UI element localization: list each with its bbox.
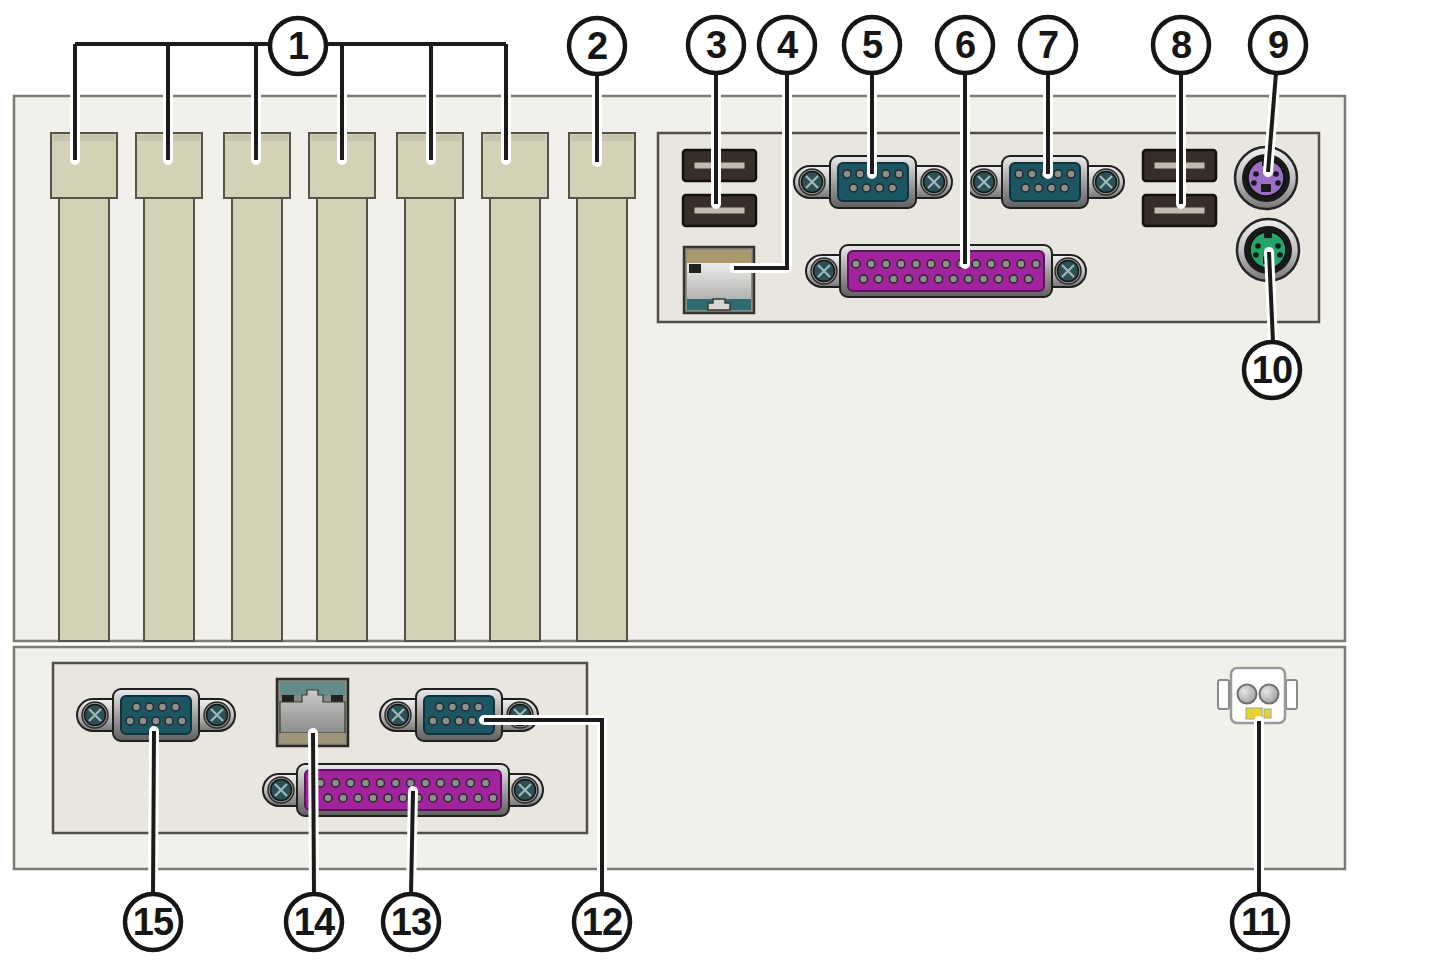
- callout-number: 9: [1268, 24, 1288, 66]
- connector-pin: [442, 717, 450, 725]
- ps2-pin-hole: [1251, 180, 1257, 186]
- connector-pin: [489, 794, 497, 802]
- leader-line-14: [313, 733, 314, 894]
- connector-pin: [339, 794, 347, 802]
- parallel-icon: [848, 251, 1044, 291]
- callout-2: 2: [569, 18, 625, 74]
- callout-1: 1: [270, 18, 326, 74]
- connector-pin: [890, 275, 898, 283]
- connector-pin: [429, 717, 437, 725]
- ps2-pin-hole: [1277, 252, 1283, 258]
- expansion-slot-body: [577, 198, 627, 641]
- usb-contact-tab: [694, 207, 745, 214]
- connector-pin: [856, 170, 864, 178]
- power-tab-right: [1286, 680, 1297, 709]
- ethernet-port-top: [684, 247, 754, 313]
- rj45-contact-block: [689, 264, 701, 273]
- connector-pin: [1015, 170, 1023, 178]
- connector-pin: [987, 260, 995, 268]
- power-key: [1264, 709, 1271, 718]
- ps2-pin-hole: [1275, 180, 1281, 186]
- connector-pin: [1022, 184, 1030, 192]
- expansion-slot-body: [232, 198, 282, 641]
- connector-pin: [965, 275, 973, 283]
- connector-pin: [449, 703, 457, 711]
- connector-pin: [895, 170, 903, 178]
- connector-pin: [1032, 260, 1040, 268]
- callout-5: 5: [844, 17, 900, 73]
- connector-pin: [436, 703, 444, 711]
- expansion-slot-body: [405, 198, 455, 641]
- callout-14: 14: [286, 894, 342, 950]
- connector-pin: [912, 260, 920, 268]
- expansion-slot-1: [51, 133, 117, 641]
- connector-pin: [852, 260, 860, 268]
- connector-pin: [429, 794, 437, 802]
- connector-pin: [876, 184, 884, 192]
- callout-13: 13: [383, 894, 439, 950]
- connector-pin: [377, 779, 385, 787]
- connector-pin: [875, 275, 883, 283]
- connector-pin: [850, 184, 858, 192]
- connector-pin: [980, 275, 988, 283]
- connector-pin: [452, 779, 460, 787]
- callout-number: 12: [582, 901, 622, 943]
- expansion-slot-body: [317, 198, 367, 641]
- connector-pin: [459, 794, 467, 802]
- connector-pin: [392, 779, 400, 787]
- callout-number: 7: [1038, 24, 1058, 66]
- connector-pin: [897, 260, 905, 268]
- power-pin: [1238, 685, 1257, 704]
- connector-pin: [1010, 275, 1018, 283]
- connector-pin: [172, 703, 180, 711]
- callout-number: 4: [777, 24, 798, 66]
- ps2-notch: [1264, 231, 1272, 238]
- connector-pin: [422, 779, 430, 787]
- connector-pin: [362, 779, 370, 787]
- connector-pin: [920, 275, 928, 283]
- callout-9: 9: [1250, 17, 1306, 73]
- slot-bracket-lip: [53, 135, 115, 141]
- callout-number: 14: [294, 901, 335, 943]
- connector-pin: [133, 703, 141, 711]
- connector-pin: [146, 703, 154, 711]
- connector-pin: [139, 717, 147, 725]
- expansion-slot-body: [59, 198, 109, 641]
- connector-pin: [935, 275, 943, 283]
- connector-pin: [1067, 170, 1075, 178]
- callout-number: 1: [288, 25, 309, 67]
- power-tab-left: [1218, 680, 1229, 709]
- connector-pin: [159, 703, 167, 711]
- callout-8: 8: [1153, 17, 1209, 73]
- expansion-slot-6: [482, 133, 548, 641]
- connector-pin: [882, 260, 890, 268]
- connector-pin: [437, 779, 445, 787]
- power-connector: [1218, 668, 1297, 723]
- connector-pin: [1035, 184, 1043, 192]
- expansion-slot-2: [136, 133, 202, 641]
- connector-pin: [1048, 184, 1056, 192]
- connector-pin: [843, 170, 851, 178]
- expansion-slot-4: [309, 133, 375, 641]
- callout-number: 11: [1241, 901, 1280, 943]
- expansion-slot-bracket: [482, 133, 548, 198]
- connector-pin: [972, 260, 980, 268]
- callout-number: 2: [587, 25, 607, 67]
- connector-pin: [882, 170, 890, 178]
- callout-number: 15: [133, 901, 174, 943]
- ps2-pin-hole: [1253, 252, 1259, 258]
- power-pin: [1260, 685, 1279, 704]
- diagram-canvas: 1 2 3 4 5 6 7 8 9 10 11 12 13 14 15: [0, 0, 1441, 975]
- parallel-port-top: [806, 245, 1086, 297]
- connector-pin: [474, 794, 482, 802]
- connector-pin: [1025, 275, 1033, 283]
- connector-pin: [860, 275, 868, 283]
- expansion-slot-3: [224, 133, 290, 641]
- ps2-key-slot: [1261, 184, 1271, 192]
- callout-number: 5: [862, 24, 883, 66]
- ps2-pin-hole: [1253, 171, 1259, 177]
- callout-15: 15: [125, 894, 181, 950]
- serial-icon: [424, 696, 494, 734]
- connector-pin: [369, 794, 377, 802]
- connector-pin: [942, 260, 950, 268]
- callout-12: 12: [574, 894, 630, 950]
- connector-pin: [332, 779, 340, 787]
- connector-pin: [950, 275, 958, 283]
- callout-number: 13: [391, 901, 431, 943]
- connector-pin: [399, 794, 407, 802]
- callout-number: 3: [706, 24, 726, 66]
- connector-pin: [152, 717, 160, 725]
- connector-pin: [1061, 184, 1069, 192]
- expansion-slot-5: [397, 133, 463, 641]
- ps2-pin-hole: [1255, 243, 1261, 249]
- callout-7: 7: [1020, 17, 1076, 73]
- rear-panel-diagram: 1 2 3 4 5 6 7 8 9 10 11 12 13 14 15: [0, 0, 1441, 975]
- connector-pin: [462, 703, 470, 711]
- connector-pin: [407, 779, 415, 787]
- callout-number: 10: [1252, 349, 1292, 391]
- connector-pin: [905, 275, 913, 283]
- connector-pin: [927, 260, 935, 268]
- connector-pin: [889, 184, 897, 192]
- callout-11: 11: [1232, 894, 1288, 950]
- callout-3: 3: [688, 17, 744, 73]
- connector-pin: [455, 717, 463, 725]
- ps2-pin-hole: [1275, 243, 1281, 249]
- connector-pin: [384, 794, 392, 802]
- expansion-slot-body: [490, 198, 540, 641]
- parallel-icon: [305, 770, 501, 810]
- connector-pin: [1054, 170, 1062, 178]
- connector-pin: [354, 794, 362, 802]
- connector-pin: [178, 717, 186, 725]
- callout-6: 6: [937, 17, 993, 73]
- connector-pin: [444, 794, 452, 802]
- expansion-slot-bracket: [51, 133, 117, 198]
- connector-pin: [126, 717, 134, 725]
- connector-pin: [324, 794, 332, 802]
- connector-pin: [1017, 260, 1025, 268]
- callout-number: 8: [1171, 24, 1191, 66]
- connector-pin: [467, 779, 475, 787]
- connector-pin: [867, 260, 875, 268]
- ps2-pin-hole: [1273, 171, 1279, 177]
- slot-bracket-lip: [484, 135, 546, 141]
- connector-pin: [995, 275, 1003, 283]
- rj45-top-strip: [687, 250, 751, 263]
- connector-pin: [482, 779, 490, 787]
- connector-pin: [863, 184, 871, 192]
- connector-pin: [165, 717, 173, 725]
- leader-line-15: [153, 731, 154, 894]
- connector-pin: [1002, 260, 1010, 268]
- connector-pin: [1028, 170, 1036, 178]
- connector-pin: [468, 717, 476, 725]
- callout-4: 4: [759, 17, 815, 73]
- expansion-slot-7: [569, 133, 635, 641]
- expansion-slot-body: [144, 198, 194, 641]
- connector-pin: [475, 703, 483, 711]
- connector-pin: [347, 779, 355, 787]
- parallel-port-bottom: [263, 764, 543, 816]
- leader-line-13: [411, 791, 413, 894]
- callout-number: 6: [955, 24, 975, 66]
- callout-10: 10: [1244, 342, 1300, 398]
